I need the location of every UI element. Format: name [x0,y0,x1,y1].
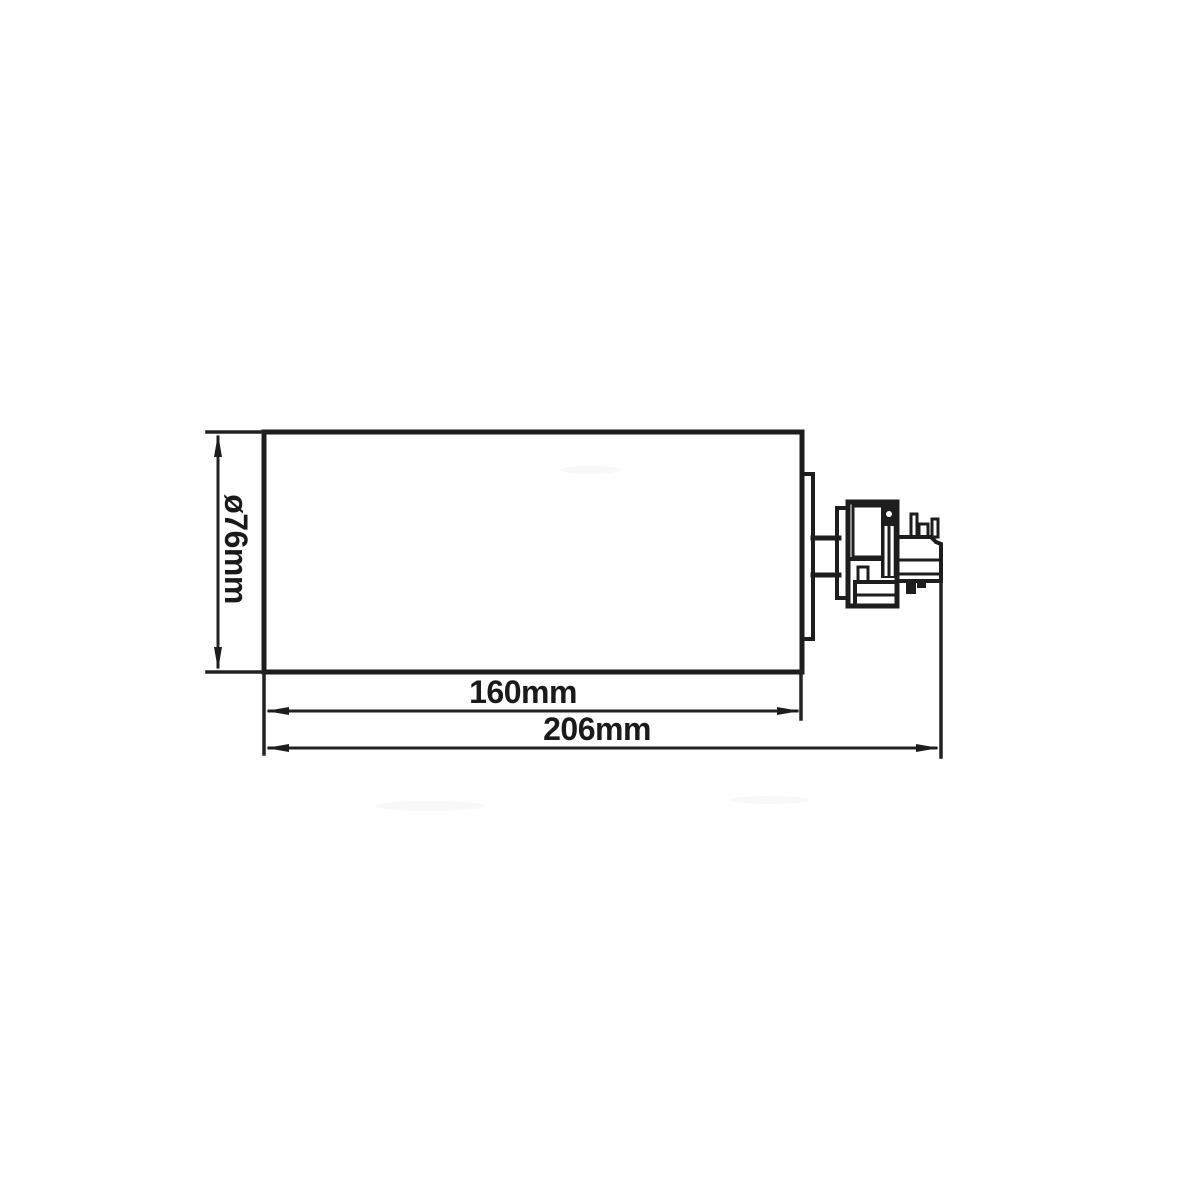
gearbox-tab [858,567,868,582]
dimension-overall-length: 206mm [266,581,941,757]
arrowhead-left [266,744,289,752]
terminal-pin [911,514,917,537]
gearbox-pivot-dot [886,511,892,517]
terminal-pin [932,519,938,537]
gearbox-slit [891,526,894,576]
cylinder-outline [264,432,802,672]
motor [897,514,941,594]
gearbox-slit [885,526,888,576]
gearbox [837,502,897,606]
dimension-diameter: ø76mm [207,432,264,672]
arrowhead-left [266,707,289,715]
diameter-label: ø76mm [218,494,254,604]
arrowhead-down [214,647,222,670]
motor-bottom-lug [906,581,916,594]
overall-length-label: 206mm [543,711,651,747]
body-length-label: 160mm [469,674,577,710]
motor-bottom-lug [917,581,926,588]
cylinder-body [264,432,802,672]
scan-smudge [730,796,810,804]
technical-drawing-page: ø76mm 160mm 206mm [0,0,1181,1181]
terminal-pins [911,514,938,537]
arrowhead-up [214,434,222,457]
gearbox-window [853,506,883,557]
arrowhead-right [777,707,800,715]
dimension-body-length: 160mm [264,672,801,754]
scan-smudge [560,466,620,474]
end-cap-flange [802,474,813,639]
scan-smudge [375,801,485,811]
arrowhead-right [916,744,939,752]
scan-artifacts [375,466,810,811]
dimension-drawing-canvas: ø76mm 160mm 206mm [0,0,1181,1181]
